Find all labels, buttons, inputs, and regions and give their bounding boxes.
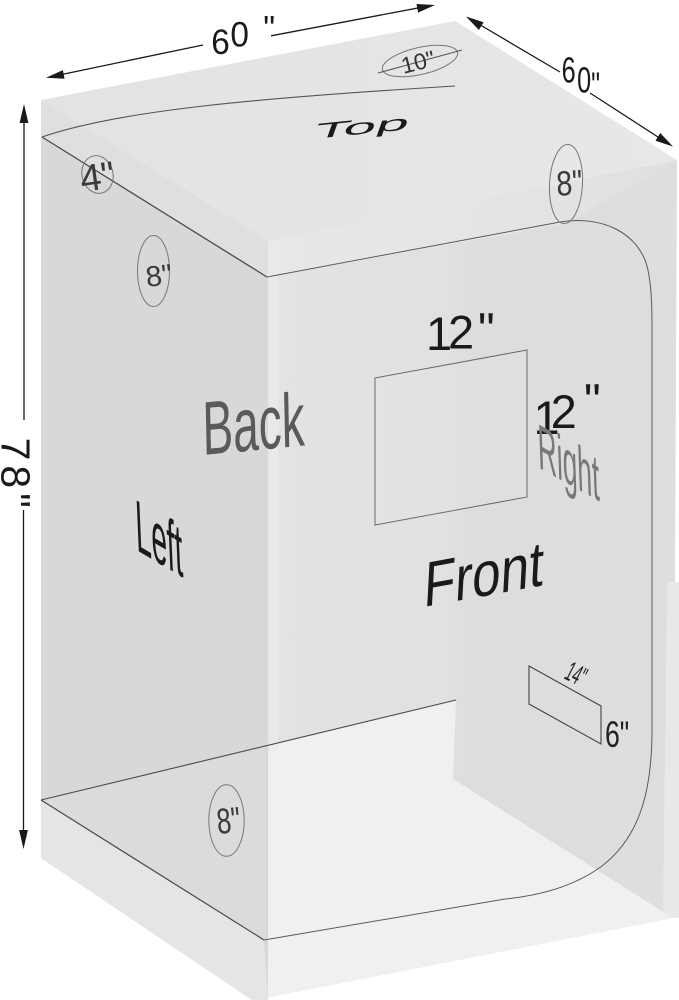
svg-text:8": 8"	[144, 259, 174, 294]
svg-text:8": 8"	[215, 800, 243, 842]
svg-text:4": 4"	[77, 155, 117, 201]
svg-text:78": 78"	[0, 438, 39, 513]
svg-text:12": 12"	[426, 303, 495, 360]
svg-text:6": 6"	[605, 714, 629, 755]
svg-text:8": 8"	[555, 162, 583, 203]
svg-text:Back: Back	[202, 378, 306, 472]
